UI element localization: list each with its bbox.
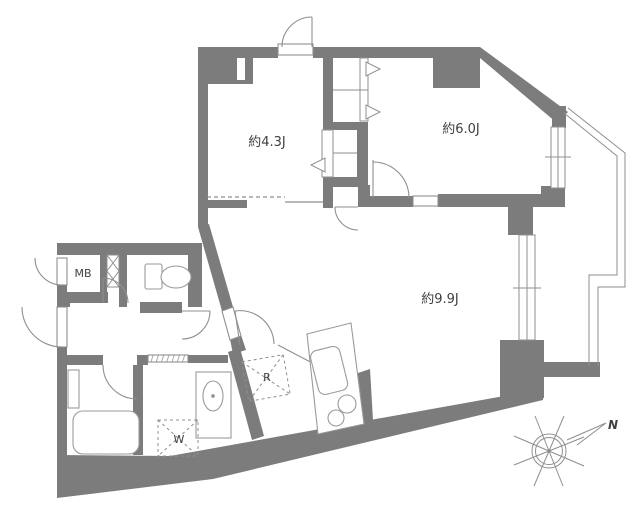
wall-pillar-northeast <box>433 47 480 88</box>
room-label-6-0j: 約6.0J <box>442 122 480 137</box>
fridge-label: R <box>263 371 271 384</box>
wall-nook-east <box>358 185 370 207</box>
wall-diagonal-hall-lower <box>228 348 264 440</box>
wall-window-connector <box>508 207 533 235</box>
vanity-drain <box>212 395 215 398</box>
north-door-arc <box>282 17 312 47</box>
wall-washroom-top <box>188 355 228 363</box>
room-label-4-3j: 約4.3J <box>248 135 286 150</box>
wall-6j-bottom-west <box>370 196 413 207</box>
north-door-threshold <box>278 44 313 55</box>
toilet-tank <box>145 264 162 289</box>
balcony-railing-outer <box>568 108 625 366</box>
wall-pillar-northwest <box>208 55 253 84</box>
closets <box>311 58 380 177</box>
wall-ps-toilet <box>119 255 127 307</box>
wall-southeast-corner <box>500 340 544 398</box>
wall-diagonal-hall-upper <box>198 224 233 311</box>
vanity-icon <box>196 372 231 438</box>
compass-icon <box>514 416 606 486</box>
west-door-leaf <box>57 307 67 347</box>
bedroom6-door-arc <box>373 162 409 198</box>
wall-window1-head <box>552 106 566 128</box>
west-door-arc <box>22 307 62 347</box>
washroom-door-arc <box>182 311 210 339</box>
kitchen-icon <box>307 323 364 434</box>
toilet-icon <box>145 264 191 289</box>
living-opening-threshold <box>413 196 438 206</box>
closet-door-triangle-icon <box>311 158 325 172</box>
closet-door-triangle-icon <box>366 62 380 76</box>
floor-plan-page: 約4.3J 約6.0J 約9.9J MB R W N <box>0 0 640 515</box>
meter-box-label: MB <box>74 267 91 280</box>
wall-bathroom-top-right <box>137 355 148 365</box>
washroom-sliding-door <box>148 355 188 362</box>
wall-mb-bottom <box>65 292 108 303</box>
wall-closet-column-upper <box>323 47 333 130</box>
floor-plan-svg: 約4.3J 約6.0J 約9.9J MB R W N <box>0 0 640 515</box>
wall-bathroom-top-left <box>57 355 103 365</box>
bath-counter <box>68 370 79 408</box>
compass-spoke <box>514 436 584 466</box>
bathroom-door-arc <box>103 365 137 399</box>
compass-north-label: N <box>608 418 618 432</box>
meter-box-door-leaf <box>57 258 67 285</box>
bathroom-fixtures <box>68 370 139 454</box>
washer-label: W <box>174 433 185 446</box>
hall-door-arc <box>335 207 358 230</box>
wall-service-top <box>57 243 202 255</box>
wall-4j-partition-stub <box>207 200 247 208</box>
closet-door-triangle-icon <box>366 105 380 119</box>
windows-balcony <box>513 108 625 366</box>
bathtub-icon <box>73 411 139 454</box>
wall-closet-mid <box>323 122 368 130</box>
wall-toilet-bottom <box>140 302 182 313</box>
wall-balcony-arm <box>544 362 600 377</box>
pipe-niche <box>237 58 245 80</box>
wall-west-bedroom <box>198 47 208 227</box>
balcony-railing-inner <box>564 113 617 366</box>
room-label-9-9j: 約9.9J <box>421 292 459 307</box>
toilet-bowl <box>161 266 191 288</box>
